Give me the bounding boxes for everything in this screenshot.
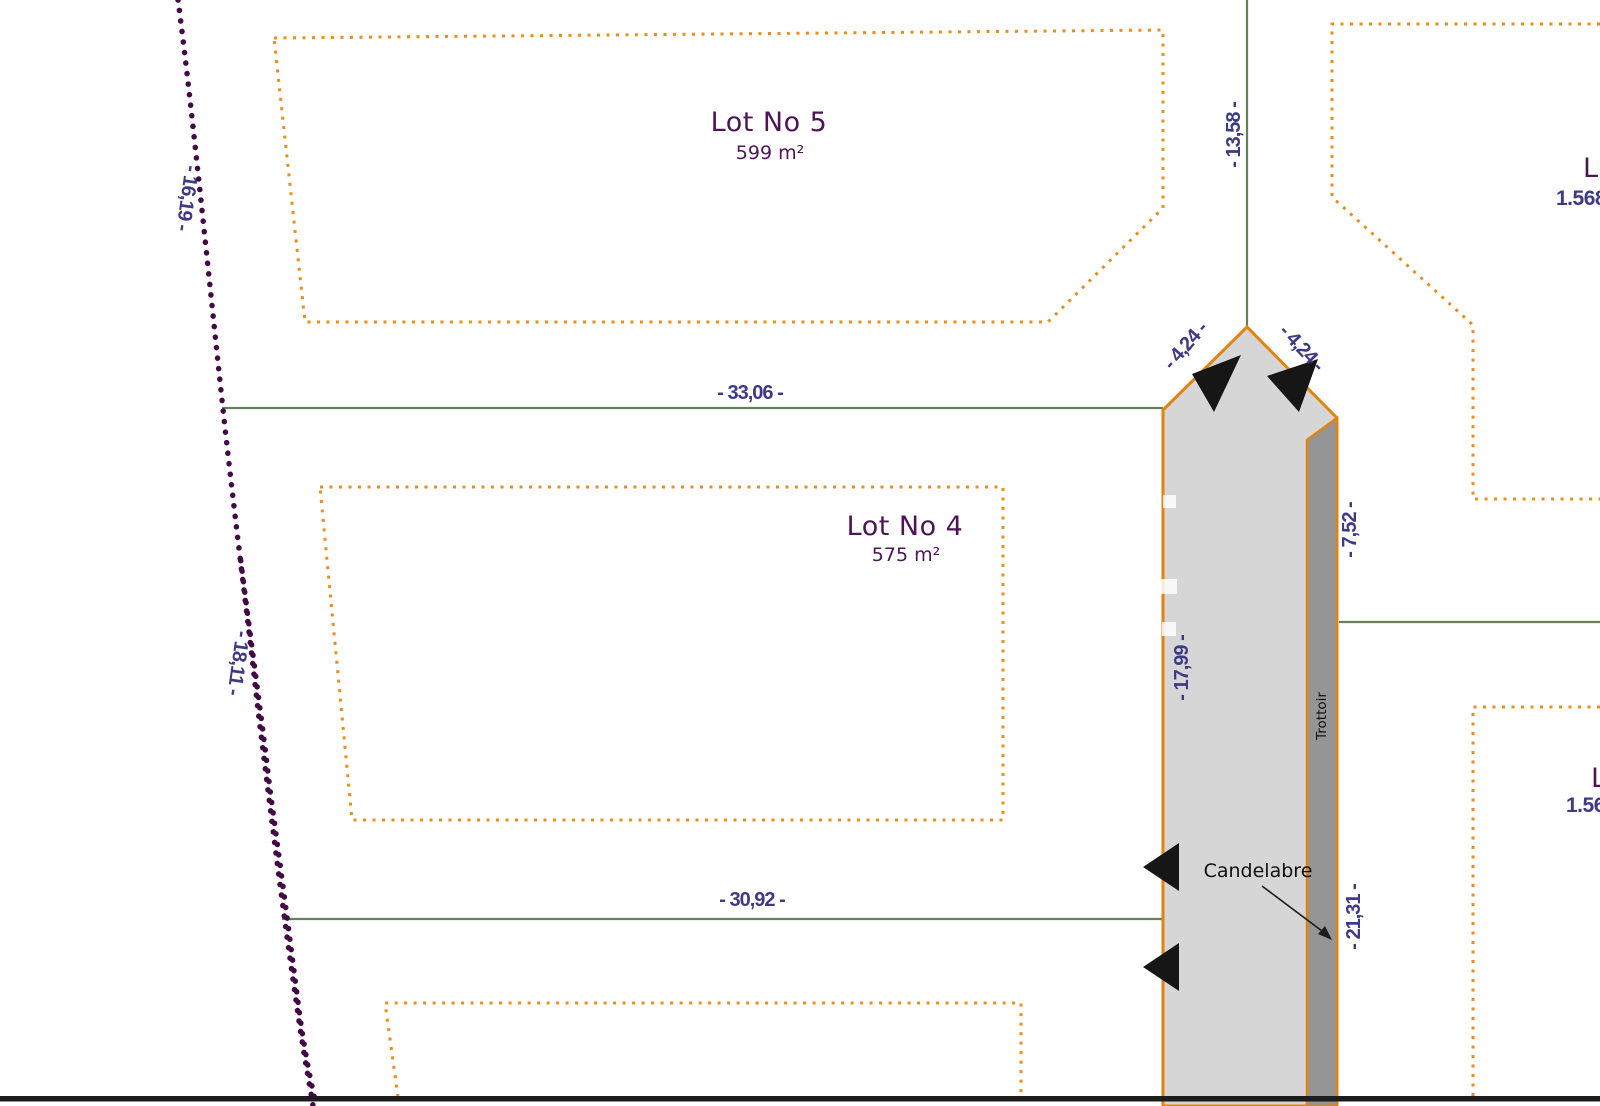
plan-bottom-border xyxy=(0,1096,1600,1102)
pavement-mark xyxy=(1161,579,1177,594)
lot5-area: 599 m² xyxy=(736,142,804,164)
dim-lot5-south: - 33,06 - xyxy=(717,382,783,404)
dim-sidewalk-lower: - 21,31 - xyxy=(1343,884,1365,950)
dim-west-lower: - 18,11 - xyxy=(223,629,254,696)
road-edge-arrow-icon xyxy=(1143,943,1179,991)
road-edge-arrow-icon xyxy=(1143,843,1179,891)
plan-drawing: Lot No 5 599 m² Lot No 4 575 m² L 1.568 … xyxy=(0,0,1600,1106)
pavement-mark xyxy=(1163,495,1176,508)
east-lot-lower-boundary xyxy=(1473,707,1600,1097)
lot4-area: 575 m² xyxy=(872,544,940,566)
dim-west-upper: - 16,19 - xyxy=(171,164,202,232)
candelabre-label: Candelabre xyxy=(1204,860,1313,882)
dim-apex-left: - 4,24 - xyxy=(1159,318,1212,374)
dim-road-left-edge: - 17,99 - xyxy=(1171,635,1193,701)
cadastral-plan-canvas: Lot No 5 599 m² Lot No 4 575 m² L 1.568 … xyxy=(0,0,1600,1106)
south-lot-boundary xyxy=(385,1003,1021,1097)
sidewalk-strip xyxy=(1307,418,1337,1106)
trottoir-label: Trottoir xyxy=(1314,692,1330,741)
east-lower-lot-name: L xyxy=(1591,763,1600,794)
dim-lot4-south: - 30,92 - xyxy=(719,889,785,911)
east-lower-lot-area: 1.56 xyxy=(1566,794,1600,817)
dim-road-axis-top: - 13,58 - xyxy=(1223,102,1245,168)
east-upper-lot-name: L xyxy=(1583,153,1599,184)
east-upper-lot-area: 1.568 xyxy=(1556,187,1600,210)
east-lot-upper-boundary xyxy=(1332,24,1600,499)
dim-sidewalk-upper: - 7,52 - xyxy=(1339,502,1361,558)
lot5-name: Lot No 5 xyxy=(711,107,828,138)
lot4-name: Lot No 4 xyxy=(847,511,964,542)
lot5-boundary xyxy=(274,30,1163,322)
pavement-mark xyxy=(1162,622,1176,636)
